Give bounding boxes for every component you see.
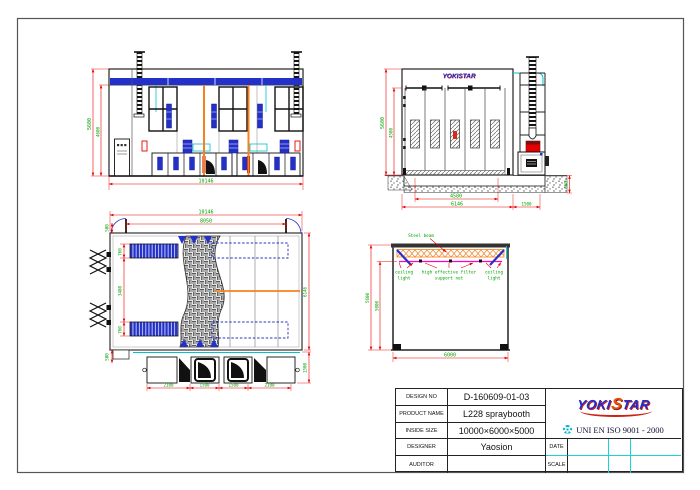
dim-label: 3480 <box>118 285 123 296</box>
hinge-symbol <box>90 250 111 327</box>
grating-strip <box>130 322 178 336</box>
cabinet-grill <box>526 159 537 167</box>
foundation-pit <box>385 176 567 193</box>
dim-label: 5000 <box>375 300 380 311</box>
design-no-label: DESIGN NO <box>396 389 448 406</box>
scale-value <box>568 456 608 473</box>
dim-label: 5600 <box>87 118 93 130</box>
door-window <box>491 120 500 148</box>
dim-label: 8050 <box>200 219 212 225</box>
motor-icon <box>183 140 192 153</box>
product-name-value: L228 spraybooth <box>448 406 546 423</box>
logo-text-part1: YOKI <box>576 397 612 412</box>
designer-label: DESIGNER <box>396 439 448 456</box>
date-cell-3 <box>630 439 681 456</box>
design-no-value: D-160609-01-03 <box>448 389 546 406</box>
annotation-label: ceiling <box>485 270 504 276</box>
steel-beam-truss <box>397 250 504 258</box>
annotation-label: high effective filter <box>422 270 477 276</box>
date-label: DATE <box>546 439 568 456</box>
plan-view: 10146 8050 500 760 3480 760 500 6146 150… <box>90 210 311 392</box>
door-window <box>411 120 420 148</box>
drawing-sheet: 5600 4600 10146 YOKISTAR YOKISTAR <box>0 0 700 490</box>
dim-label: 1500 <box>228 383 239 388</box>
scale-label: SCALE <box>546 456 568 473</box>
floor-grating <box>405 171 505 176</box>
dim-label: 500 <box>105 353 110 361</box>
dim-label: 760 <box>118 248 123 256</box>
inside-size-value: 10000×6000×5000 <box>448 423 546 439</box>
dim-label: 5600 <box>365 292 370 303</box>
dim-label: 6146 <box>303 286 308 297</box>
door-handle <box>453 131 457 139</box>
motor-icon <box>280 140 289 153</box>
dim-label: 4580 <box>450 194 462 200</box>
exhaust-fan-group <box>133 353 300 384</box>
section-view: Steel beam ceiling light high effective … <box>365 233 510 362</box>
dim-label: 1500 <box>199 383 210 388</box>
iso-gear-icon <box>563 425 572 434</box>
dim-label: 1500 <box>521 202 532 207</box>
corner-box <box>113 350 129 359</box>
logo-underline-swoosh <box>579 411 652 417</box>
auditor-label: AUDITOR <box>396 456 448 473</box>
annotation-label: light <box>488 276 501 282</box>
scale-cell-2 <box>608 456 630 473</box>
annotation-label: Steel beam <box>408 233 434 239</box>
front-elevation-view: 5600 4600 10146 <box>87 52 303 190</box>
dim-label: 4600 <box>96 126 101 137</box>
dim-label: 4500 <box>389 127 394 138</box>
dim-label: 5600 <box>380 117 386 129</box>
product-name-label: PRODUCT NAME <box>396 406 448 423</box>
designer-value: Yaosion <box>448 439 546 456</box>
mini-logo: YOKISTAR <box>442 73 475 80</box>
annotation-label: light <box>398 276 411 282</box>
dim-label: 2100 <box>264 383 275 388</box>
motor-icon <box>229 140 238 153</box>
control-panel <box>115 139 130 176</box>
dim-label: 760 <box>118 326 123 334</box>
date-cell-2 <box>608 439 630 456</box>
title-block: DESIGN NO PRODUCT NAME INSIDE SIZE DESIG… <box>395 388 683 472</box>
door-window <box>471 120 480 148</box>
scale-cell-3 <box>630 456 681 473</box>
iso-certification: UNI EN ISO 9001 - 2000 <box>546 421 681 439</box>
dim-label: 500 <box>105 224 110 232</box>
iso-text: UNI EN ISO 9001 - 2000 <box>576 425 664 435</box>
dim-label: 10146 <box>198 210 213 216</box>
duct-corner <box>513 73 543 86</box>
annotation-label: support net <box>435 276 464 282</box>
ceiling-plenum-band <box>110 78 302 85</box>
side-elevation-view: YOKISTAR YOKISTAR <box>380 57 572 210</box>
door-window <box>431 120 440 148</box>
annotation-label: ceiling <box>395 270 414 276</box>
dim-label: 6000 <box>444 353 456 359</box>
exhaust-stack-icon <box>529 57 536 128</box>
dim-label: 6146 <box>451 202 463 208</box>
stack-hook <box>529 128 536 139</box>
roof-slab <box>391 244 510 248</box>
dim-label: 1500 <box>303 362 308 373</box>
inside-size-label: INSIDE SIZE <box>396 423 448 439</box>
logo-text-part2: TAR <box>622 397 651 412</box>
dim-label: 2100 <box>163 383 174 388</box>
dim-label: 10146 <box>198 179 213 185</box>
grating-strip <box>130 244 178 258</box>
company-logo: YOKISTAR <box>546 389 681 421</box>
section-dimensions: 5600 5000 6000 <box>365 245 508 362</box>
auditor-value <box>448 456 546 473</box>
date-value <box>568 439 608 456</box>
service-tower <box>513 57 549 175</box>
dim-label: 650 <box>564 181 569 189</box>
